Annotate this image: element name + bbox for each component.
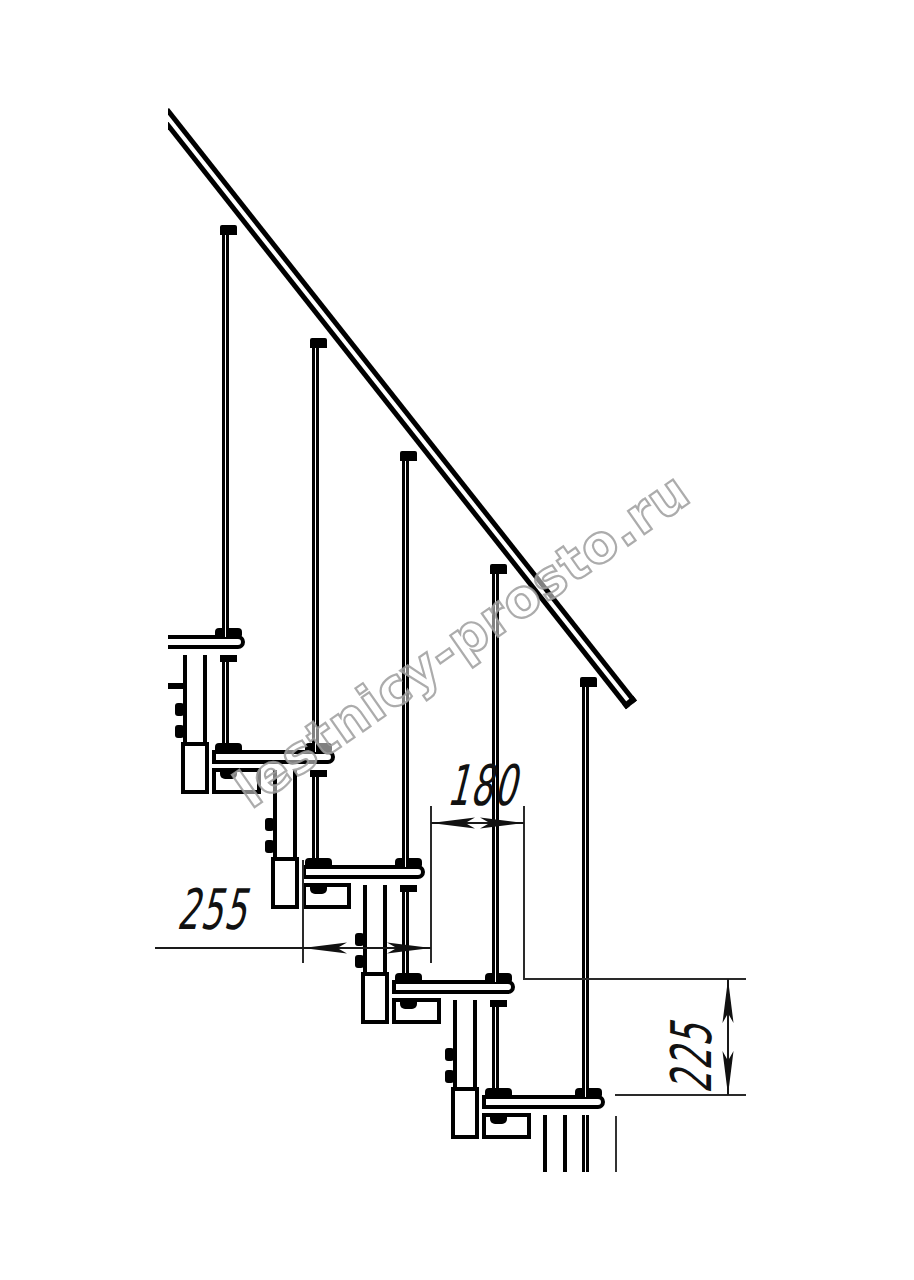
tread-support-post (492, 1002, 499, 1097)
tread (392, 980, 515, 994)
extension-line (523, 978, 746, 980)
support-module-box (181, 742, 209, 794)
support-module-box (361, 972, 389, 1024)
staircase-drawing (168, 0, 914, 1280)
tread (302, 865, 425, 879)
post-mount (395, 973, 422, 982)
post-mount (215, 743, 242, 752)
through-bolt-nut-icon (490, 1115, 507, 1124)
tread-edge-line (615, 1116, 617, 1172)
baluster-rail-cap (580, 677, 597, 687)
support-module-neck (543, 1115, 567, 1172)
tread-support-post (312, 772, 319, 867)
support-module-box (451, 1087, 479, 1139)
tread-support-post (402, 887, 409, 982)
module-bolt-icon (175, 703, 184, 716)
dimension-label-255: 255 (174, 882, 258, 938)
dimension-label-225: 225 (664, 1012, 720, 1096)
support-module-neck (453, 1000, 477, 1089)
tread (482, 1095, 605, 1109)
baluster (582, 687, 589, 1097)
extension-line (523, 806, 525, 980)
module-bolt-icon (355, 933, 364, 946)
baluster (222, 235, 229, 637)
module-bolt-icon (175, 725, 184, 738)
support-module-neck (363, 885, 387, 974)
module-bolt-icon (445, 1070, 454, 1083)
module-bolt-icon (265, 818, 274, 831)
tread-support-post (222, 657, 229, 752)
support-module-box (271, 857, 299, 909)
baluster-rail-cap (310, 338, 327, 348)
post-mount (305, 858, 332, 867)
tread-support-post (582, 1115, 589, 1172)
post-mount (485, 1088, 512, 1097)
module-bolt-icon (445, 1048, 454, 1061)
post-top-plate (220, 655, 237, 662)
post-top-plate (490, 1000, 507, 1007)
baluster-rail-cap (400, 451, 417, 461)
support-module-neck (183, 655, 207, 744)
tread (168, 635, 245, 649)
post-top-plate (400, 885, 417, 892)
module-bolt-icon (265, 840, 274, 853)
extension-line (430, 806, 432, 963)
dimension-label-180: 180 (444, 758, 528, 814)
baluster (312, 348, 319, 752)
module-bolt-icon (355, 955, 364, 968)
dimension-line-255 (155, 947, 431, 949)
through-bolt-nut-icon (400, 1000, 417, 1009)
baluster-rail-cap (220, 225, 237, 235)
through-bolt-nut-icon (310, 885, 327, 894)
technical-drawing-canvas: 255 180 225 lestnicy-prosto.ru (0, 0, 914, 1280)
